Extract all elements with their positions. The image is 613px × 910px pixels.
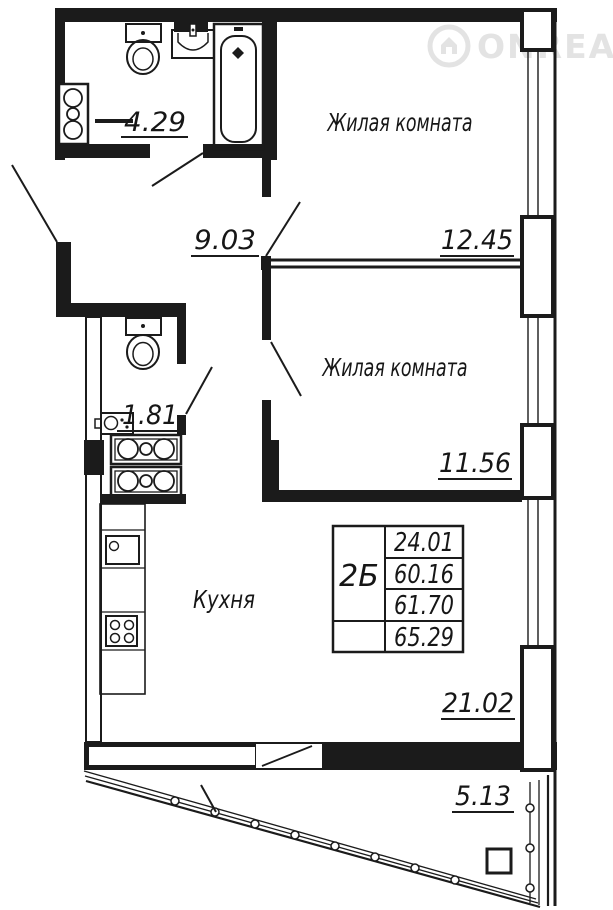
door-swings bbox=[12, 153, 301, 414]
rooms-divider bbox=[262, 260, 521, 267]
vent-duct-icon bbox=[111, 467, 181, 496]
wc-door-swing-line bbox=[186, 367, 212, 414]
wall-segment bbox=[56, 242, 71, 304]
floor-plan: ONREALT bbox=[0, 0, 613, 910]
wall-segment bbox=[84, 440, 104, 475]
riser-shaft-icon bbox=[59, 84, 88, 144]
entry-door-swing-line bbox=[12, 165, 57, 242]
spec-table: 2Б 24.01 60.16 61.70 65.29 bbox=[333, 526, 463, 653]
washbasin-icon bbox=[172, 24, 214, 58]
bathroom-door-swing-line bbox=[152, 153, 203, 186]
wall-segment bbox=[262, 160, 271, 197]
wall-segment bbox=[262, 270, 271, 340]
bottom-wall-openings bbox=[88, 744, 322, 768]
room-label-living1: Жилая комната bbox=[326, 108, 472, 137]
right-wall-windows bbox=[522, 8, 555, 906]
wall-segment bbox=[177, 317, 186, 364]
wall-segment bbox=[56, 303, 186, 317]
wall-pier bbox=[522, 217, 553, 316]
window-glass-lines bbox=[528, 50, 538, 647]
wall-segment bbox=[262, 400, 271, 442]
kitchen-fixtures bbox=[100, 504, 145, 694]
wall-pier bbox=[522, 10, 553, 50]
toilet-icon bbox=[126, 318, 161, 369]
kitchen-counter bbox=[100, 504, 145, 694]
dim-living1: 12.45 bbox=[441, 225, 513, 256]
dim-wc: 1.81 bbox=[122, 400, 178, 431]
wall-segment bbox=[55, 144, 150, 158]
living1-door-swing-line bbox=[266, 202, 300, 256]
area-cell: 24.01 bbox=[394, 528, 454, 558]
house-icon bbox=[441, 37, 457, 54]
wall-pier bbox=[522, 647, 553, 770]
living2-door-swing-line bbox=[271, 342, 301, 396]
area-cell: 61.70 bbox=[394, 591, 454, 621]
wall-segment bbox=[55, 8, 557, 22]
window bbox=[88, 746, 256, 766]
area-cell: 60.16 bbox=[394, 560, 454, 590]
wall-segment bbox=[86, 317, 101, 742]
dim-balcony: 5.13 bbox=[455, 781, 511, 812]
dim-kitchen: 21.02 bbox=[442, 688, 514, 719]
floor-plan-page: ONREALT bbox=[0, 0, 613, 910]
bathtub-icon bbox=[214, 24, 263, 149]
room-label-kitchen: Кухня bbox=[193, 585, 255, 614]
room-label-living2: Жилая комната bbox=[321, 353, 467, 382]
wall-pier bbox=[522, 425, 553, 498]
dim-living2: 11.56 bbox=[439, 448, 511, 479]
partition-walls bbox=[86, 317, 101, 742]
vent-duct-icon bbox=[111, 435, 181, 464]
toilet-icon bbox=[126, 24, 161, 74]
kitchen-sink-icon bbox=[106, 536, 139, 564]
unit-type-cell: 2Б bbox=[339, 559, 379, 594]
wall-segment bbox=[262, 490, 522, 502]
dim-bathroom: 4.29 bbox=[124, 107, 186, 138]
stove-icon bbox=[106, 616, 137, 646]
balcony-partition-line bbox=[201, 785, 216, 812]
area-cell: 65.29 bbox=[394, 623, 454, 653]
balcony-column bbox=[487, 849, 511, 873]
dim-hallway: 9.03 bbox=[194, 225, 256, 256]
